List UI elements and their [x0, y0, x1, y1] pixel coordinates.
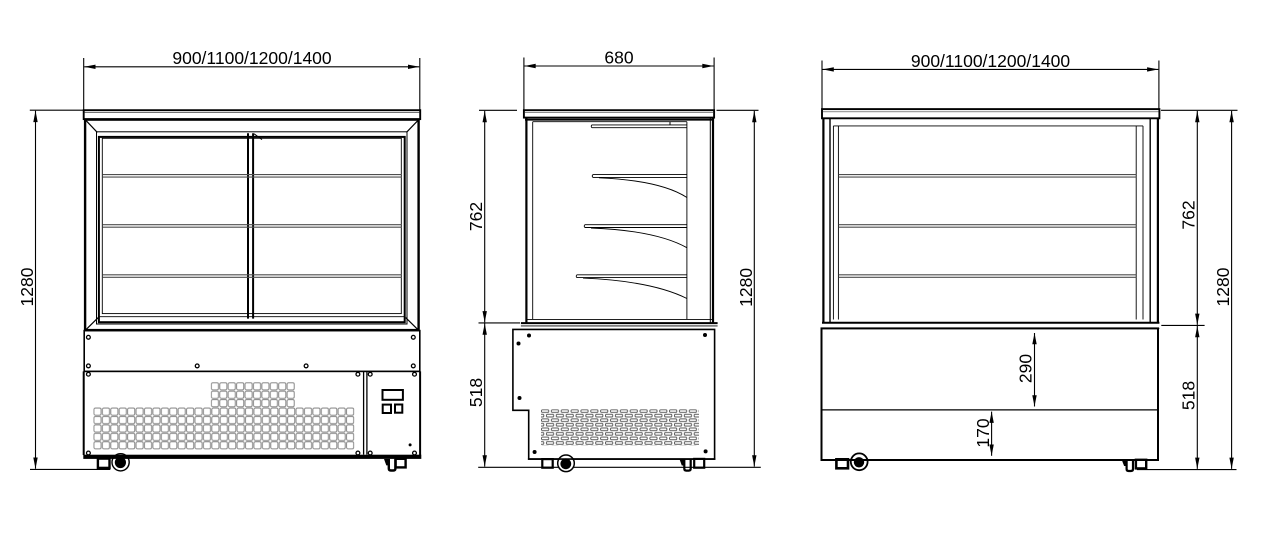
svg-text:518: 518	[1179, 381, 1199, 410]
svg-text:762: 762	[1179, 200, 1199, 229]
svg-text:1280: 1280	[17, 267, 37, 306]
svg-text:290: 290	[1016, 354, 1036, 383]
svg-text:1280: 1280	[736, 268, 756, 307]
svg-text:1280: 1280	[1213, 267, 1233, 306]
svg-text:518: 518	[466, 378, 486, 407]
svg-text:900/1100/1200/1400: 900/1100/1200/1400	[911, 51, 1071, 71]
svg-text:680: 680	[604, 47, 633, 67]
svg-text:900/1100/1200/1400: 900/1100/1200/1400	[172, 48, 332, 68]
svg-text:170: 170	[973, 418, 993, 447]
svg-text:762: 762	[466, 202, 486, 231]
